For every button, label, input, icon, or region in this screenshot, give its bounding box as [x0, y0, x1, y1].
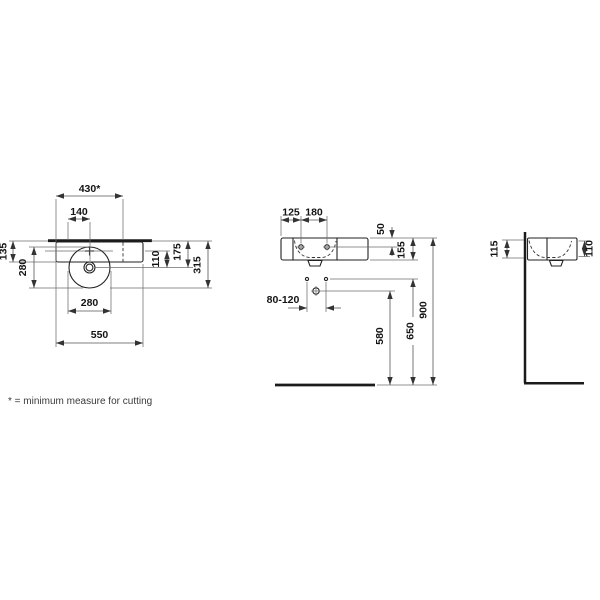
side-bowl-profile [529, 241, 572, 258]
dim-label-drain-height: 580 [374, 327, 386, 345]
washbasin-technical-drawing: 430* 140 135 280 110 175 315 280 550 [0, 0, 600, 600]
dim-label-total-width: 550 [91, 329, 109, 341]
front-taphole-left-cross [297, 244, 305, 251]
front-drain-cross [311, 286, 321, 296]
front-taphole-right-cross [323, 244, 331, 251]
front-trap [308, 261, 322, 267]
dim-label-total-depth: 315 [192, 256, 204, 274]
dim-label-center-depth: 175 [172, 243, 184, 261]
front-fixing-hole-right [324, 277, 327, 280]
footnote: * = minimum measure for cutting [8, 396, 152, 407]
dim-label-back-ledge: 135 [0, 243, 10, 261]
drawing-svg: 430* 140 135 280 110 175 315 280 550 [0, 0, 600, 600]
plan-basin-body [56, 242, 143, 262]
dim-label-left-to-tap: 125 [282, 207, 300, 219]
plan-taphole-cross [86, 247, 94, 255]
front-view: 125 180 50 155 580 650 900 80-120 [267, 207, 437, 386]
dim-label-top-to-tap: 50 [375, 223, 387, 235]
dim-label-bowl-width: 280 [81, 297, 99, 309]
dim-label-bowl-depth: 280 [17, 259, 29, 277]
dim-label-drain-offset: 80-120 [267, 294, 300, 306]
side-basin-body [528, 238, 578, 260]
dim-label-bowl-radius: 140 [70, 206, 88, 218]
dim-label-bowl-back-offset: 110 [150, 250, 162, 267]
side-view: 115 110 [489, 232, 596, 383]
dim-label-front-height: 110 [584, 240, 596, 257]
dim-label-back-height: 115 [489, 240, 501, 257]
front-fixing-hole-left [305, 277, 308, 280]
dim-label-fixing-height: 650 [405, 322, 417, 340]
dim-label-body-height: 155 [396, 241, 408, 259]
dim-label-rim-height: 900 [418, 301, 430, 319]
plan-view: 430* 140 135 280 110 175 315 280 550 [0, 183, 212, 347]
dim-label-cutout-width: 430* [79, 183, 102, 195]
plan-drain-inner [86, 264, 93, 271]
side-trap [550, 261, 564, 267]
dim-label-tap-spacing: 180 [305, 207, 323, 219]
